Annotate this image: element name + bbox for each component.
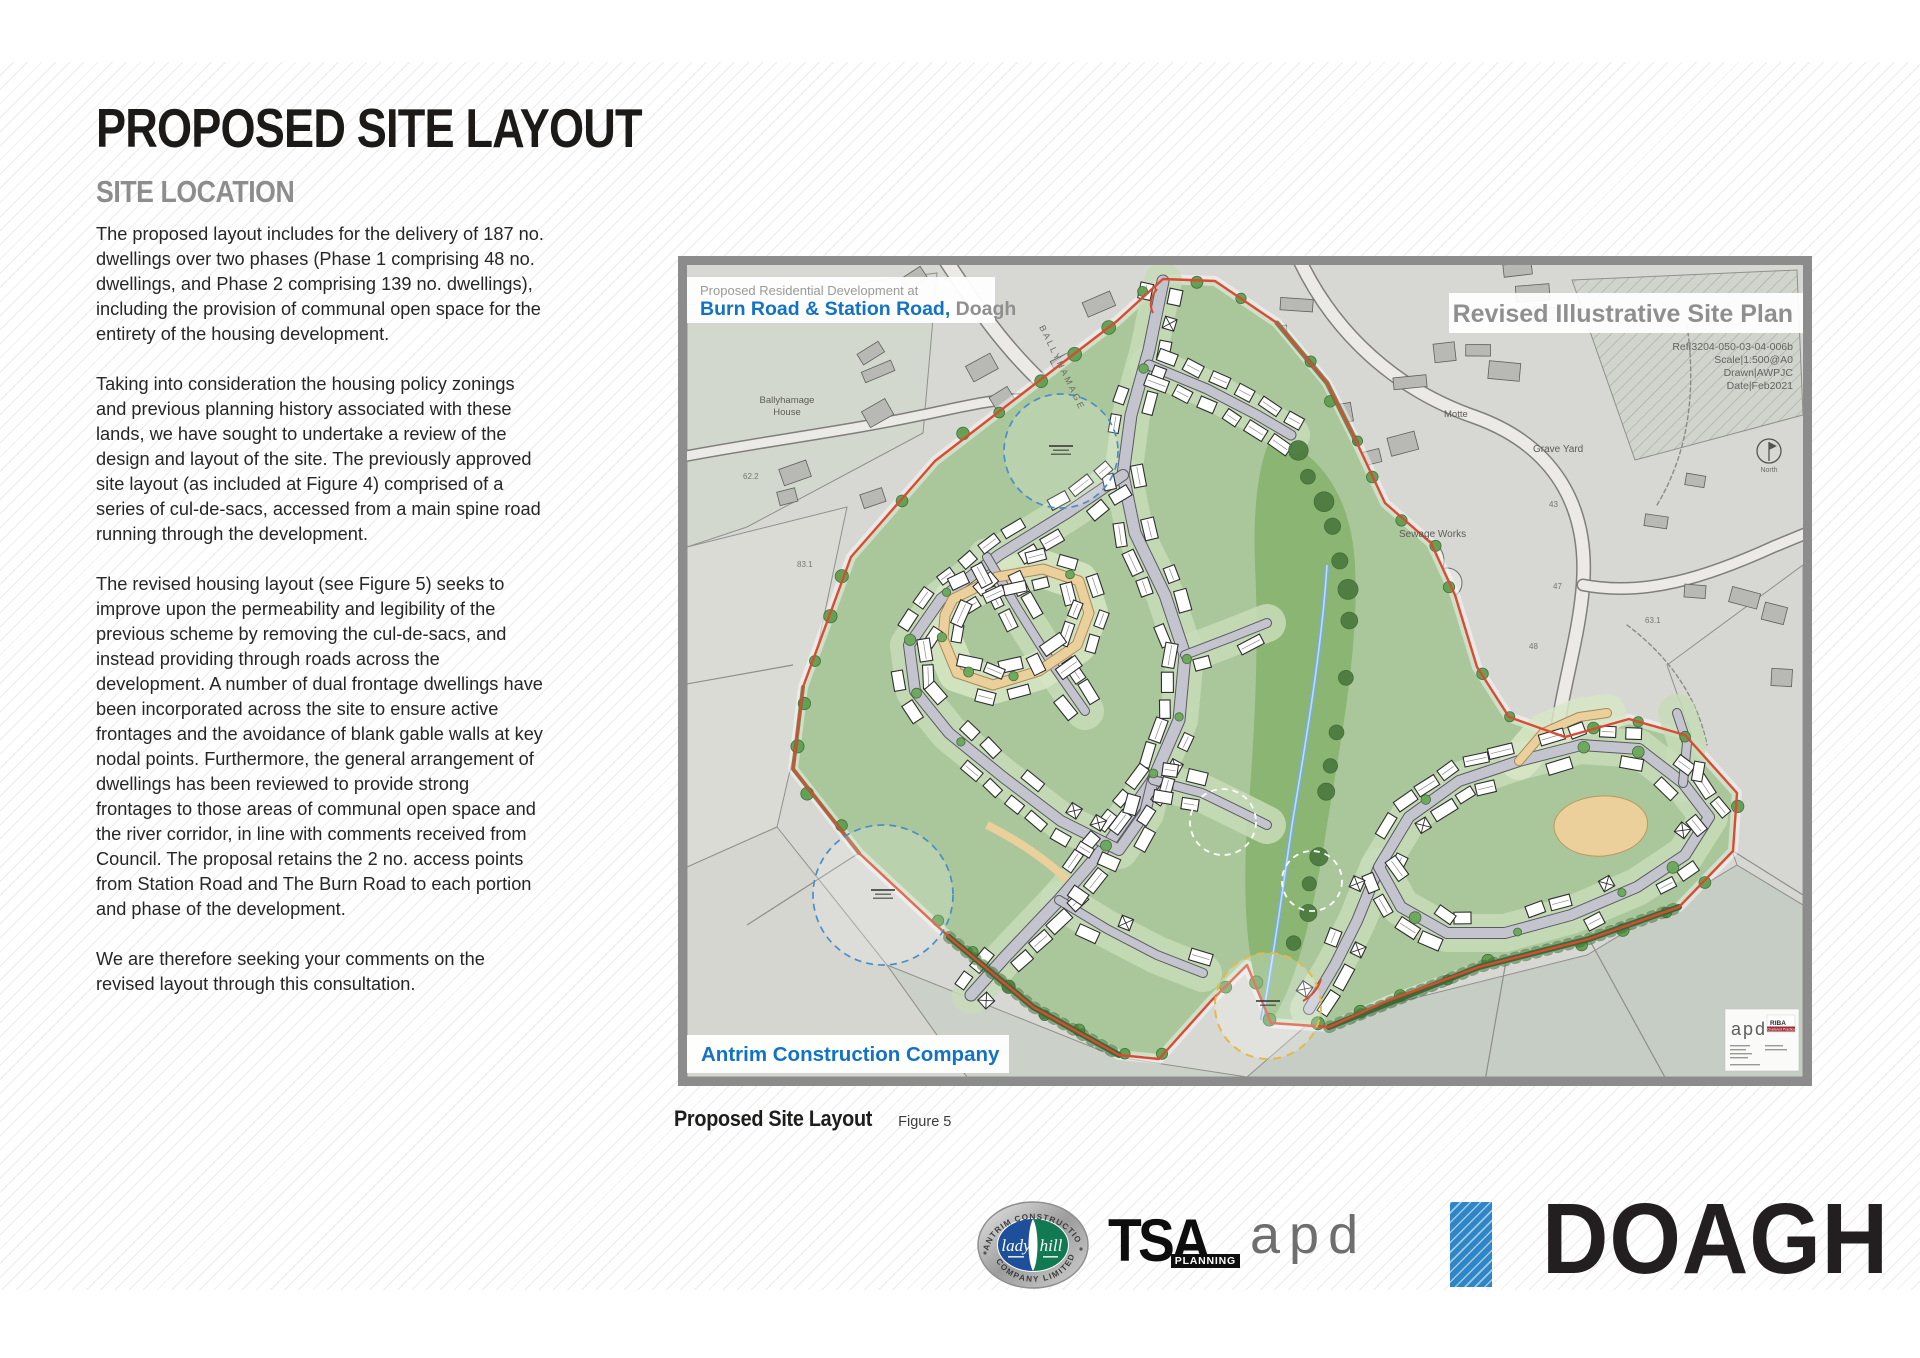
key-area-circle-yellow [1215,953,1321,1059]
plan-header-small: Proposed Residential Development at [700,283,919,298]
label-ballyhamage-2: House [773,407,800,418]
label-sewage-works: Sewage Works [1399,529,1466,540]
logo-row: lady hill ANTRIM CONSTRUCTION COMPANY LI… [0,1190,1920,1340]
plan-header-blue: Burn Road & Station Road, [700,298,950,320]
company-banner: Antrim Construction Company [701,1043,1000,1066]
figure-caption-label: Figure 5 [898,1114,951,1130]
section-subtitle: SITE LOCATION [96,174,485,210]
label-motte: Motte [1444,409,1468,420]
apd-box-logo: apd [1731,1019,1767,1039]
label-n831: 83.1 [797,560,813,569]
label-n43: 43 [1549,500,1558,509]
body-copy: The proposed layout includes for the del… [96,222,548,997]
doagh-wordmark: DOAGH [1542,1182,1889,1297]
page-title: PROPOSED SITE LAYOUT [96,96,467,160]
north-label: North [1760,467,1777,474]
plan-ref-line-3: Drawn|AWPJC [1724,367,1794,379]
paragraph-2: Taking into consideration the housing po… [96,372,548,547]
plan-header-title: Burn Road & Station Road, Doagh [700,298,1016,320]
tsa-planning-logo: TSA PLANNING [1108,1214,1236,1274]
plan-ref-line-4: Date|Feb2021 [1727,380,1794,392]
label-n47: 47 [1553,582,1562,591]
riba-sub: Chartered Practice [1767,1028,1795,1032]
paragraph-3: The revised housing layout (see Figure 5… [96,572,548,922]
key-area-circle-blue-left [813,825,953,965]
key-area-circle-blue-top [1004,394,1118,508]
plan-header-gray: Doagh [950,298,1016,320]
label-n48: 48 [1529,642,1538,651]
figure-caption-title: Proposed Site Layout [674,1106,872,1132]
tsa-planning-label: PLANNING [1171,1254,1240,1268]
site-plan-figure: North Proposed Residential Development a… [678,256,1812,1086]
label-ballyhamage-1: Ballyhamage [760,395,815,406]
plan-ref-line-1: Ref|3204-050-03-04-006b [1672,341,1793,353]
apd-logo: apd [1250,1204,1367,1266]
acc-lady-text: lady [1001,1236,1031,1255]
plan-title: Revised Illustrative Site Plan [1453,300,1793,328]
label-n631: 63.1 [1645,616,1661,625]
doagh-blue-square-icon [1450,1202,1492,1287]
label-n622: 62.2 [743,472,759,481]
figure-caption: Proposed Site LayoutFigure 5 [674,1106,951,1132]
site-plan-map: North Proposed Residential Development a… [687,265,1803,1077]
acc-hill-text: hill [1040,1236,1063,1255]
label-grave-yard: Grave Yard [1533,444,1583,455]
paragraph-4: We are therefore seeking your comments o… [96,947,548,997]
riba-logo: RIBA [1770,1020,1786,1027]
apd-title-block: apd RIBA Chartered Practice [1725,1009,1799,1071]
text-column: PROPOSED SITE LAYOUT SITE LOCATION The p… [96,96,548,1022]
plan-ref-line-2: Scale|1:500@A0 [1714,354,1793,366]
antrim-construction-logo: lady hill ANTRIM CONSTRUCTION COMPANY LI… [977,1201,1089,1289]
paragraph-1: The proposed layout includes for the del… [96,222,548,347]
